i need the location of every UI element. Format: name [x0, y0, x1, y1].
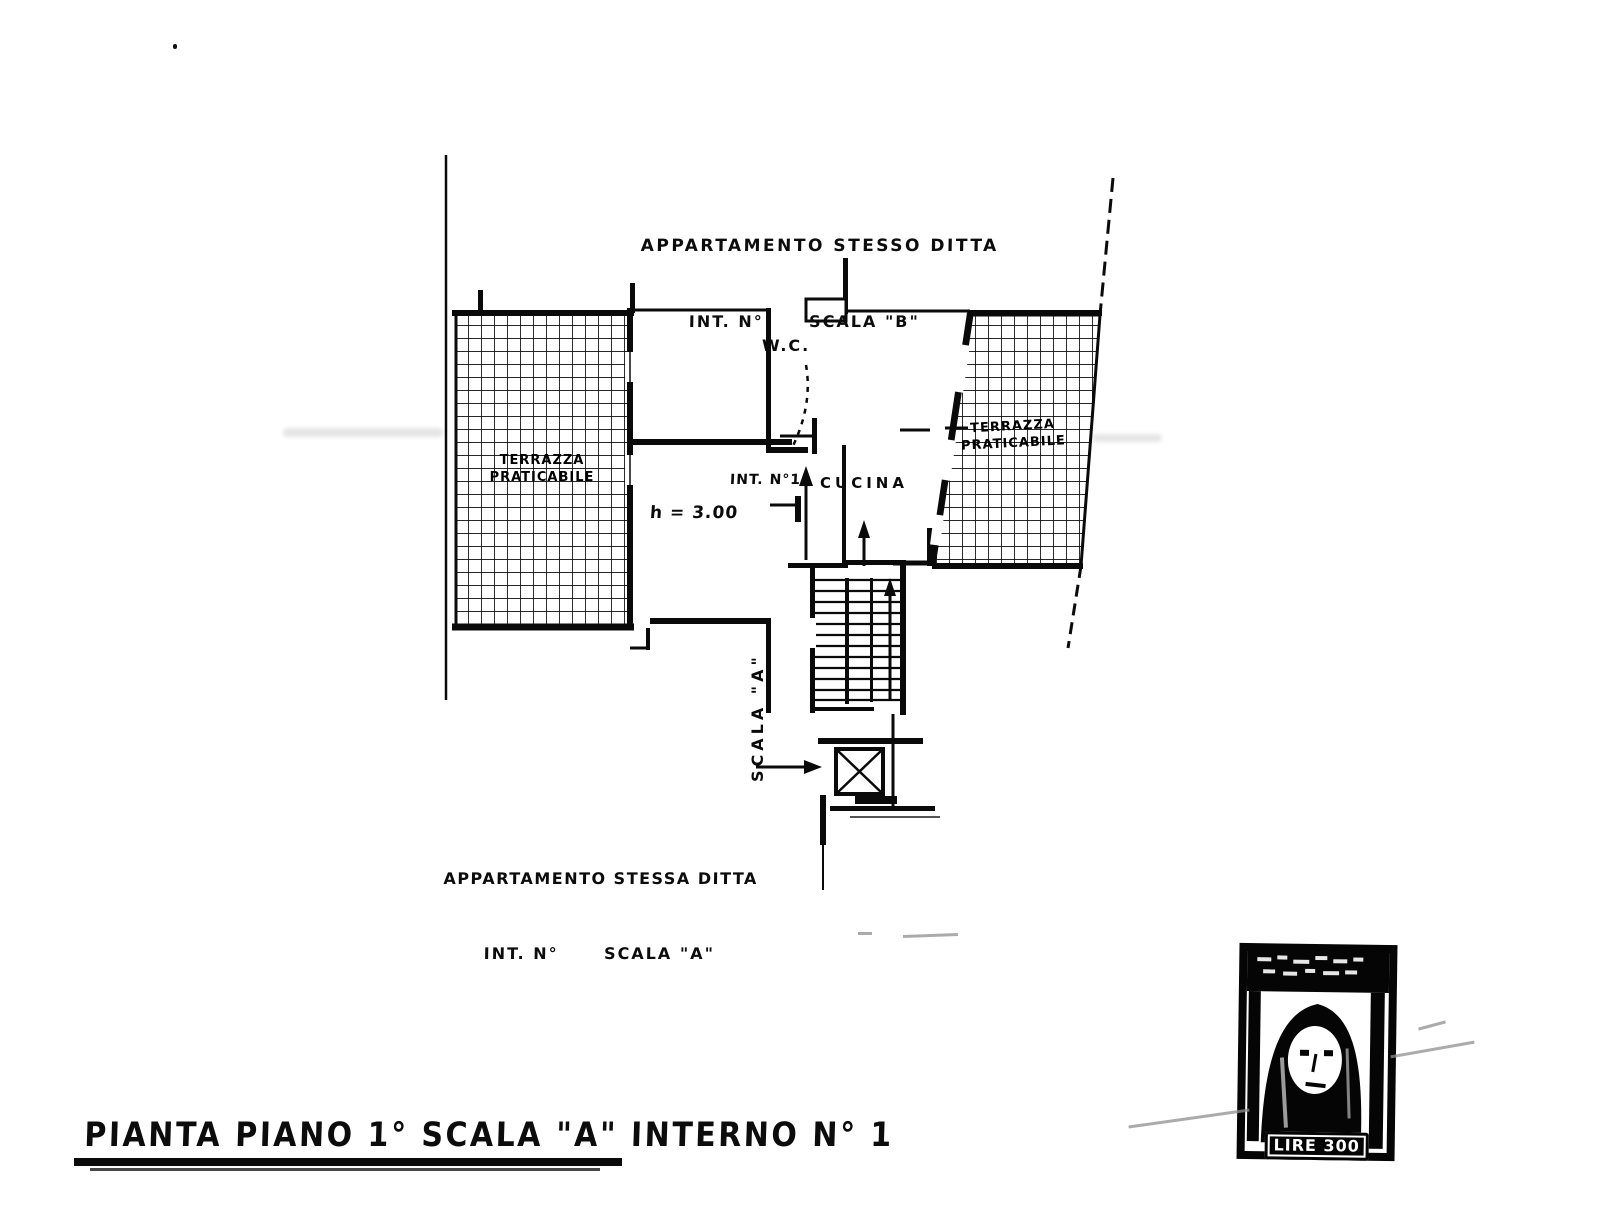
- room-height-label: h = 3.00: [649, 503, 739, 523]
- top-note-line2: INT. N° SCALA "B": [639, 309, 969, 334]
- terrace-left-label: TERRAZZA PRATICABILE: [458, 452, 626, 486]
- terrace-left-label-line1: TERRAZZA: [458, 452, 626, 469]
- scanned-floor-plan-page: TERRAZZA PRATICABILE TERRAZZA PRATICABIL…: [0, 0, 1600, 1218]
- bottom-note: APPARTAMENTO STESSA DITTA INT. N° SCALA …: [438, 816, 761, 1016]
- title-underline-echo: [90, 1168, 600, 1171]
- inner-arrow-icon: [858, 520, 870, 566]
- entry-arrow-icon: [799, 466, 813, 560]
- bottom-note-line2: INT. N° SCALA "A": [439, 941, 759, 966]
- stamp-portrait: [1261, 1003, 1363, 1143]
- interno-label: INT. N°1: [730, 472, 802, 488]
- staircase: [788, 563, 923, 744]
- title-underline: [74, 1158, 622, 1166]
- elevator: [836, 714, 893, 808]
- top-note: APPARTAMENTO STESSO DITTA INT. N° SCALA …: [638, 184, 971, 384]
- plan-title: PIANTA PIANO 1° SCALA "A" INTERNO N° 1: [84, 1116, 895, 1155]
- stair-treads: [814, 580, 900, 700]
- kitchen-label: CUCINA: [820, 474, 908, 492]
- lower-walls: [820, 795, 940, 890]
- scala-a-label: SCALA "A": [748, 622, 767, 782]
- stair-up-arrow-icon: [884, 578, 896, 700]
- terrace-left-label-line2: PRATICABILE: [458, 469, 626, 486]
- bottom-note-line1: APPARTAMENTO STESSA DITTA: [440, 866, 760, 891]
- stamp-value-label: LIRE 300: [1265, 1131, 1369, 1160]
- top-note-line1: APPARTAMENTO STESSO DITTA: [640, 234, 970, 259]
- revenue-stamp: LIRE 300: [1230, 937, 1403, 1169]
